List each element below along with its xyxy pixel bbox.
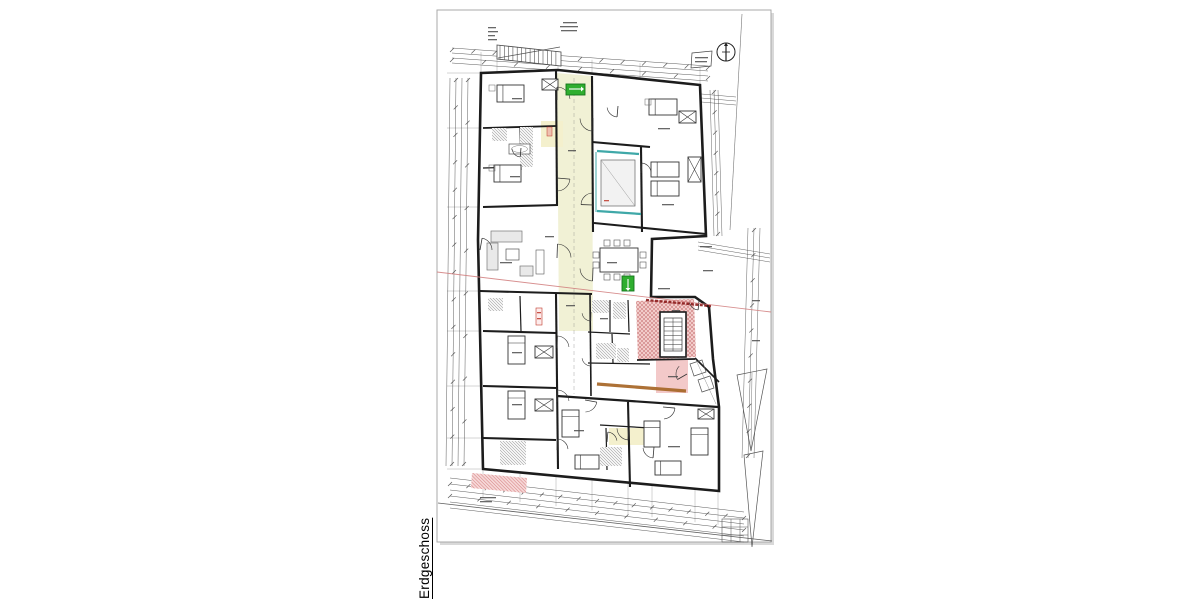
floor-label: Erdgeschoss xyxy=(417,523,434,599)
elevator-icon xyxy=(660,312,686,357)
exit-sign-icon xyxy=(622,276,634,291)
screenshot-canvas: Erdgeschoss xyxy=(0,0,1200,600)
exit-sign-icon xyxy=(566,84,585,95)
floor-plan-drawing xyxy=(0,0,1200,600)
